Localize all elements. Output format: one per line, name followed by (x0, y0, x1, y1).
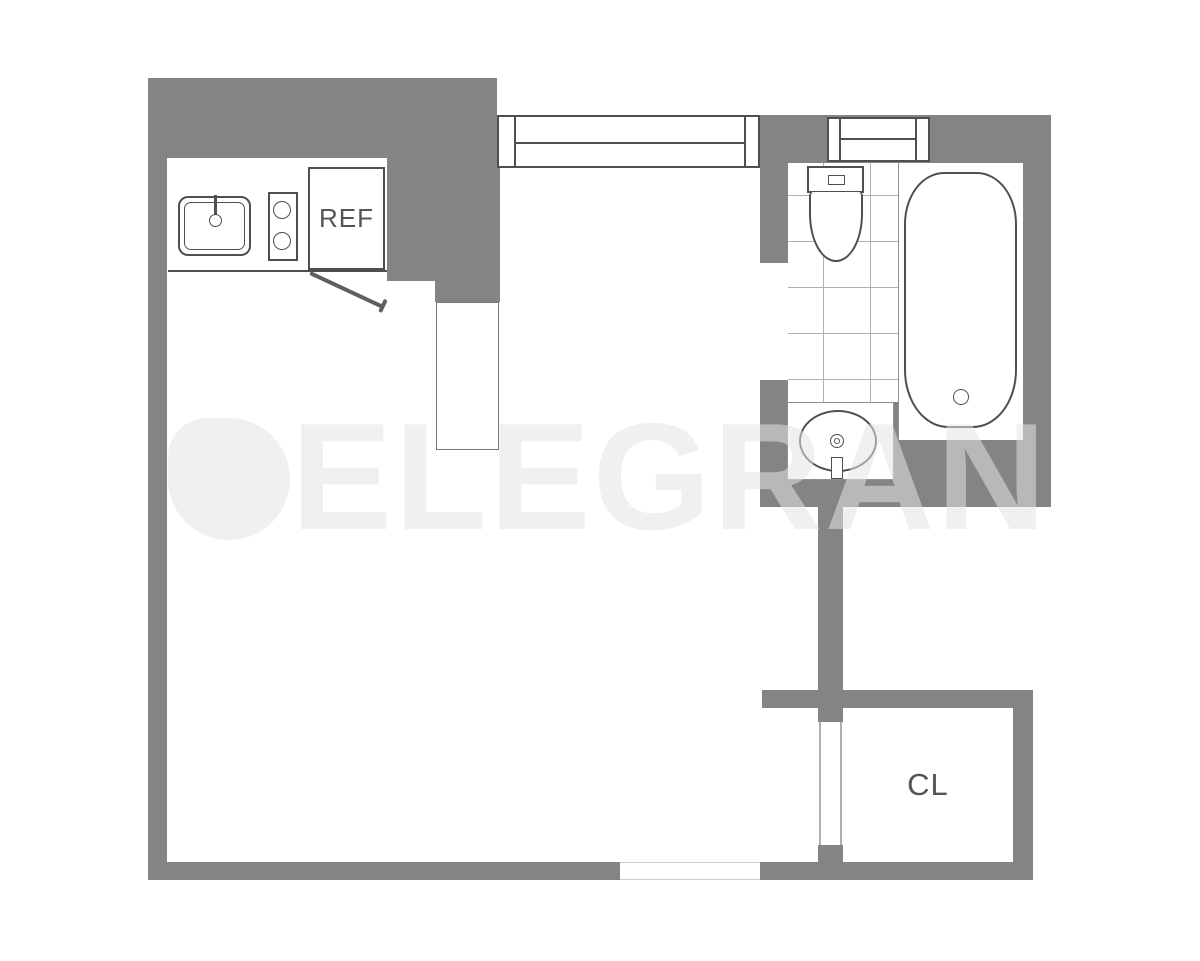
bathroom-window (827, 117, 930, 162)
closet-door-opening (818, 722, 843, 845)
stove-burner-bottom (273, 232, 291, 250)
floorplan-canvas: CL REF ELEGRAN (0, 0, 1200, 961)
wall-closet-right (1013, 708, 1033, 880)
wall-closet-stub-bottom (818, 845, 843, 862)
vanity-sink-drain-inner (834, 438, 840, 444)
wall-bottom-right (760, 862, 1033, 880)
toilet-flush-button (828, 175, 845, 185)
closet-door-jamb (819, 722, 821, 845)
bathroom-door-opening (760, 263, 788, 380)
kitchen-door-leaf-end (378, 299, 388, 313)
main-window-midrail (514, 142, 746, 144)
wall-closet-stub-top (818, 708, 843, 722)
main-window (497, 115, 760, 168)
closet-room: CL (843, 710, 1013, 860)
bathroom-window-midrail (839, 138, 917, 140)
bathtub-drain (953, 389, 969, 405)
wall-left (148, 78, 167, 880)
refrigerator-label: REF (319, 203, 374, 234)
bathtub (904, 172, 1017, 428)
toilet-tank (807, 166, 864, 193)
closet-label: CL (907, 767, 949, 803)
tile-grid-line (788, 333, 898, 334)
entry-opening (620, 862, 760, 880)
kitchen-faucet-knob (209, 214, 222, 227)
kitchen-counter-edge (168, 270, 387, 272)
elegran-logo-icon (168, 418, 290, 540)
wall-kitchen-step (435, 281, 500, 302)
tile-grid-line (788, 287, 898, 288)
wall-top-left-block (148, 78, 497, 158)
kitchen-sink (178, 196, 251, 256)
tile-grid-line (870, 163, 871, 402)
refrigerator: REF (308, 167, 385, 270)
closet-door-jamb (840, 722, 842, 845)
stove-burner-top (273, 201, 291, 219)
kitchen-door-leaf (309, 271, 383, 308)
wall-hall (762, 690, 1033, 708)
tile-grid-line (788, 379, 898, 380)
utility-column (436, 302, 499, 450)
vanity-faucet (831, 457, 843, 479)
wall-kitchen-right-block (387, 158, 500, 281)
wall-corridor (818, 507, 843, 708)
wall-bottom-left (148, 862, 620, 880)
stove (268, 192, 298, 261)
